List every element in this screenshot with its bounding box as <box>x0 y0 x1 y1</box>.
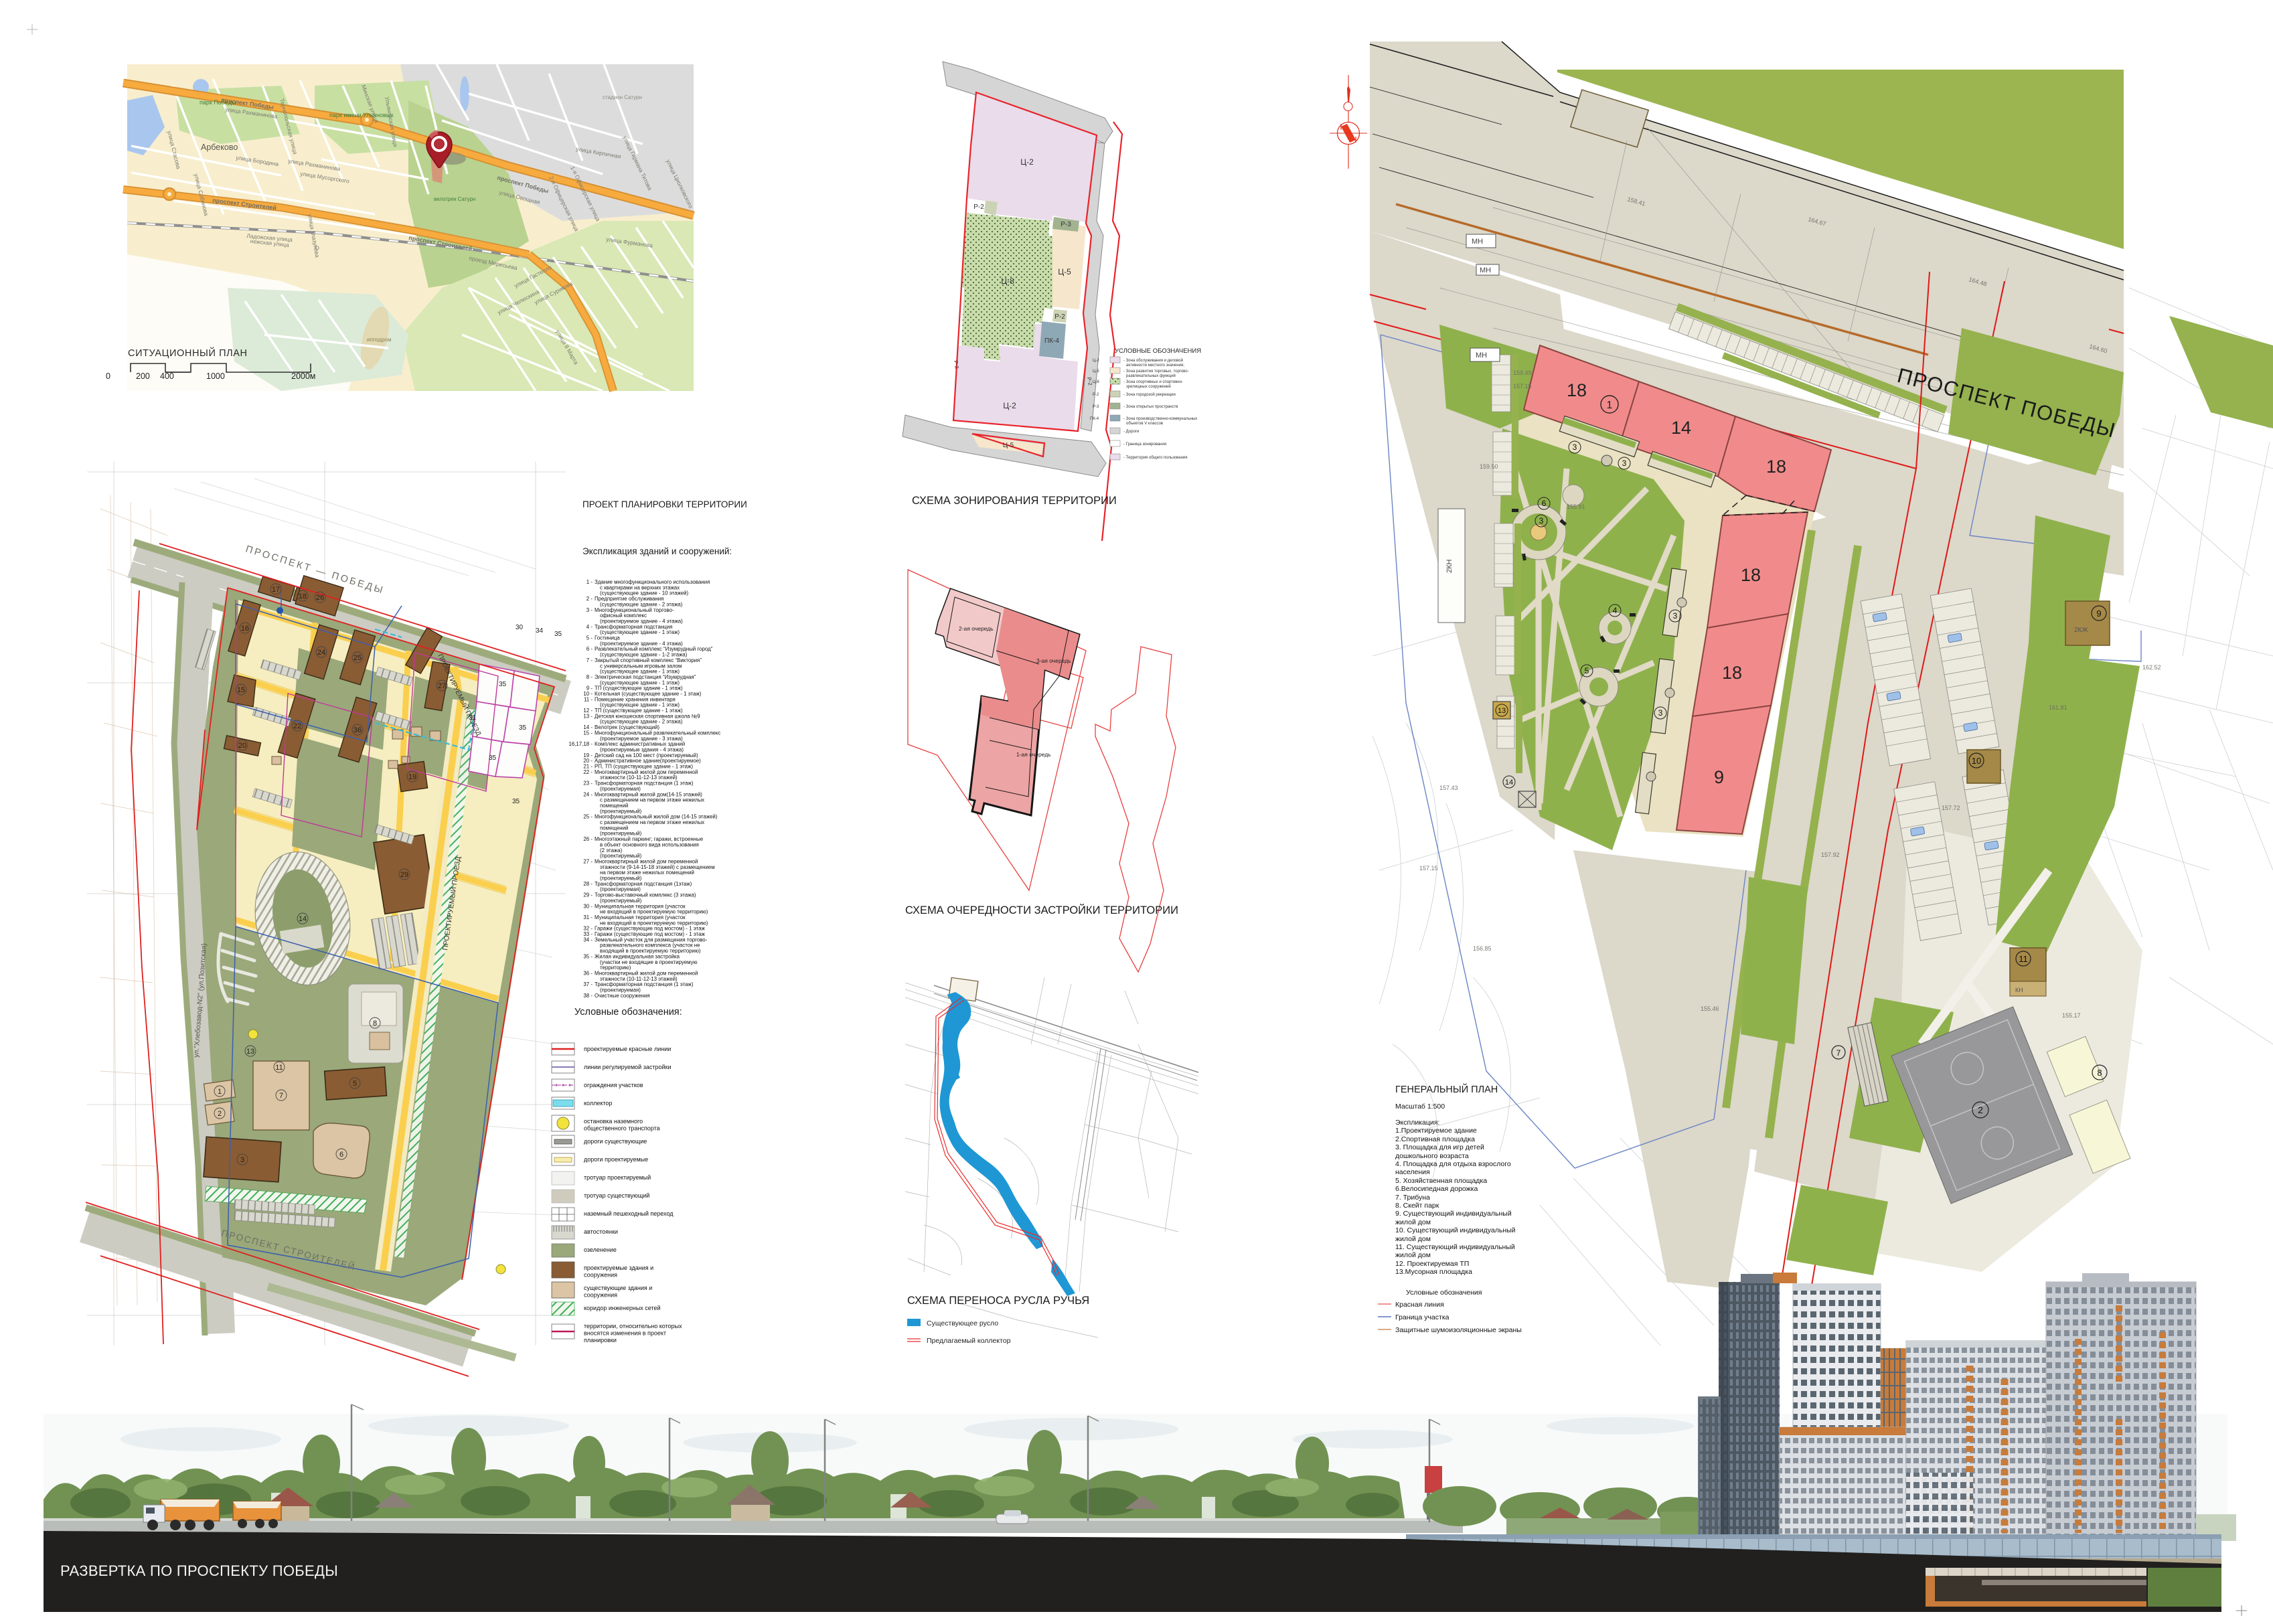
svg-text:8. Скейт парк: 8. Скейт парк <box>1395 1202 1439 1210</box>
svg-text:6 -: 6 - <box>586 646 593 652</box>
svg-text:объектов V классов: объектов V классов <box>1126 422 1163 426</box>
svg-text:ПРОЕКТ ПЛАНИРОВКИ ТЕРРИТОРИИ: ПРОЕКТ ПЛАНИРОВКИ ТЕРРИТОРИИ <box>582 499 747 509</box>
svg-text:Р-2: Р-2 <box>1054 313 1065 321</box>
svg-text:20: 20 <box>238 742 246 750</box>
svg-text:14: 14 <box>1671 418 1691 438</box>
svg-text:5: 5 <box>353 1080 357 1088</box>
svg-text:18: 18 <box>1766 457 1786 477</box>
svg-text:29 -: 29 - <box>583 892 593 898</box>
svg-text:8 -: 8 - <box>586 674 593 680</box>
svg-text:существующие здания и: существующие здания и <box>584 1285 652 1291</box>
svg-text:5: 5 <box>1585 666 1589 675</box>
svg-text:29: 29 <box>400 871 408 879</box>
svg-text:Защитные шумоизоляционные экр: Защитные шумоизоляционные экраны <box>1395 1326 1522 1334</box>
svg-text:157.15: 157.15 <box>1419 865 1438 872</box>
svg-text:4 -: 4 - <box>586 624 593 630</box>
svg-text:- Зона городской рекреации: - Зона городской рекреации <box>1123 392 1176 397</box>
svg-text:157.43: 157.43 <box>1439 785 1458 791</box>
svg-text:18: 18 <box>299 592 307 600</box>
svg-text:13.Мусорная площадка: 13.Мусорная площадка <box>1395 1268 1472 1276</box>
svg-text:Ц-2: Ц-2 <box>1003 401 1016 410</box>
svg-text:7. Трибуна: 7. Трибуна <box>1395 1194 1430 1202</box>
svg-text:16: 16 <box>241 625 249 633</box>
svg-text:Предлагаемый коллектор: Предлагаемый коллектор <box>927 1337 1011 1345</box>
svg-text:35: 35 <box>554 631 562 638</box>
svg-text:3. Площадка для игр детей: 3. Площадка для игр детей <box>1395 1143 1484 1151</box>
svg-text:14: 14 <box>299 915 307 923</box>
svg-text:34 -: 34 - <box>583 937 593 943</box>
svg-text:2-ая очередь: 2-ая очередь <box>959 625 994 632</box>
svg-text:23 -: 23 - <box>583 781 593 787</box>
svg-text:25: 25 <box>354 654 362 662</box>
svg-text:дошкольного возраста: дошкольного возраста <box>1395 1152 1469 1160</box>
svg-text:тротуар проектируемый: тротуар проектируемый <box>584 1174 651 1181</box>
svg-text:22: 22 <box>293 722 301 730</box>
svg-text:парк имени Ульяновых: парк имени Ульяновых <box>329 112 394 118</box>
svg-text:Ц-2: Ц-2 <box>1093 359 1099 363</box>
svg-text:1: 1 <box>218 1088 222 1096</box>
svg-text:9. Существующий индивидуальный: 9. Существующий индивидуальный <box>1395 1210 1512 1218</box>
svg-text:Экспликация зданий и сооружени: Экспликация зданий и сооружений: <box>582 546 732 556</box>
svg-text:жилой дом: жилой дом <box>1395 1235 1431 1243</box>
svg-text:200: 200 <box>136 372 150 381</box>
svg-text:Ц-5: Ц-5 <box>1003 442 1014 449</box>
svg-text:27 -: 27 - <box>583 859 593 865</box>
svg-text:Экспликация:: Экспликация: <box>1395 1119 1439 1127</box>
svg-text:18: 18 <box>1722 663 1742 683</box>
svg-text:24: 24 <box>317 649 325 657</box>
svg-text:155.91: 155.91 <box>1567 503 1585 510</box>
svg-text:7: 7 <box>1836 1048 1841 1058</box>
svg-text:3: 3 <box>1622 459 1627 468</box>
svg-text:3 -: 3 - <box>586 607 593 613</box>
svg-text:25 -: 25 - <box>583 814 593 820</box>
svg-text:населения: населения <box>1395 1168 1430 1176</box>
svg-text:6.Велосипедная дорожка: 6.Велосипедная дорожка <box>1395 1185 1478 1193</box>
svg-text:16,17,18 -: 16,17,18 - <box>568 741 593 747</box>
svg-text:Граница участка: Граница участка <box>1395 1313 1449 1321</box>
svg-text:жилой дом: жилой дом <box>1395 1218 1431 1226</box>
svg-text:36: 36 <box>354 726 362 734</box>
svg-text:активности местного значения;: активности местного значения; <box>1126 363 1184 368</box>
svg-text:2: 2 <box>1978 1105 1983 1115</box>
svg-text:Ц-8: Ц-8 <box>1093 380 1099 384</box>
svg-text:- Зона спортивных и спортивно-: - Зона спортивных и спортивно- <box>1123 380 1183 384</box>
svg-text:тротуар существующий: тротуар существующий <box>584 1192 649 1199</box>
svg-text:34: 34 <box>536 627 544 635</box>
svg-text:6: 6 <box>1542 499 1547 508</box>
svg-text:28 -: 28 - <box>583 881 593 887</box>
svg-text:дороги проектируемые: дороги проектируемые <box>584 1156 648 1163</box>
svg-text:35: 35 <box>489 754 497 762</box>
svg-text:31 -: 31 - <box>583 914 593 920</box>
svg-text:11: 11 <box>2019 954 2028 964</box>
svg-text:2 -: 2 - <box>586 596 593 602</box>
svg-text:2.Спортивная площадка: 2.Спортивная площадка <box>1395 1135 1475 1143</box>
svg-text:Красная линия: Красная линия <box>1395 1301 1444 1309</box>
svg-text:- Зона развития торговых, торг: - Зона развития торговых, торгово- <box>1123 370 1189 374</box>
svg-text:зрелищных сооружений: зрелищных сооружений <box>1126 384 1171 389</box>
svg-text:УСЛОВНЫЕ ОБОЗНАЧЕНИЯ: УСЛОВНЫЕ ОБОЗНАЧЕНИЯ <box>1115 347 1201 355</box>
svg-text:13 -: 13 - <box>583 713 593 719</box>
svg-text:13: 13 <box>246 1048 254 1056</box>
svg-text:156.85: 156.85 <box>1473 945 1492 952</box>
svg-text:36 -: 36 - <box>583 971 593 977</box>
svg-text:13: 13 <box>1498 707 1506 715</box>
svg-text:30 -: 30 - <box>583 903 593 909</box>
svg-text:18: 18 <box>1567 380 1587 400</box>
svg-text:Очистные сооружения: Очистные сооружения <box>595 993 650 999</box>
svg-text:155.17: 155.17 <box>2062 1012 2081 1019</box>
svg-text:КН: КН <box>2015 987 2023 993</box>
svg-text:2000м: 2000м <box>291 372 315 381</box>
svg-text:СХЕМА ЗОНИРОВАНИЯ ТЕРРИТОРИИ: СХЕМА ЗОНИРОВАНИЯ ТЕРРИТОРИИ <box>912 495 1117 507</box>
svg-text:3: 3 <box>1658 708 1663 718</box>
svg-text:3: 3 <box>1539 516 1544 525</box>
svg-text:3: 3 <box>1673 611 1678 621</box>
svg-text:МН: МН <box>1480 266 1491 274</box>
svg-text:ипподром: ипподром <box>367 337 391 343</box>
svg-text:3-ая очередь: 3-ая очередь <box>1036 657 1071 664</box>
svg-text:11. Существующий индивидуальны: 11. Существующий индивидуальный <box>1395 1243 1515 1251</box>
svg-text:35 -: 35 - <box>583 953 593 959</box>
svg-text:Ц-5: Ц-5 <box>1093 370 1099 374</box>
svg-text:6: 6 <box>339 1151 343 1159</box>
svg-text:19: 19 <box>408 773 416 781</box>
svg-text:11: 11 <box>275 1064 283 1072</box>
svg-text:22 -: 22 - <box>583 769 593 775</box>
svg-text:Ц-2: Ц-2 <box>1020 157 1034 167</box>
svg-text:11 -: 11 - <box>584 696 593 702</box>
svg-text:ограждения участков: ограждения участков <box>584 1082 643 1088</box>
svg-text:10. Существующий индивидуальны: 10. Существующий индивидуальный <box>1395 1226 1516 1234</box>
svg-text:Ц-5: Ц-5 <box>1058 267 1071 276</box>
svg-text:15 -: 15 - <box>583 730 593 736</box>
svg-text:коллектор: коллектор <box>584 1100 612 1107</box>
svg-text:37 -: 37 - <box>583 981 593 987</box>
svg-text:5. Хозяйственная площадка: 5. Хозяйственная площадка <box>1395 1177 1487 1185</box>
svg-text:15: 15 <box>237 686 245 694</box>
svg-text:ГЕНЕРАЛЬНЫЙ ПЛАН: ГЕНЕРАЛЬНЫЙ ПЛАН <box>1395 1083 1498 1095</box>
svg-text:1: 1 <box>1607 400 1613 411</box>
svg-text:2: 2 <box>218 1110 222 1118</box>
svg-text:озеленение: озеленение <box>584 1246 617 1253</box>
svg-text:8: 8 <box>373 1020 377 1028</box>
svg-text:5 -: 5 - <box>586 635 593 641</box>
svg-text:30: 30 <box>516 624 524 631</box>
svg-text:СХЕМА ОЧЕРЕДНОСТИ ЗАСТРОЙКИ ТЕ: СХЕМА ОЧЕРЕДНОСТИ ЗАСТРОЙКИ ТЕРРИТОРИИ <box>905 904 1178 916</box>
svg-text:157.72: 157.72 <box>1942 805 1960 811</box>
svg-text:Р-3: Р-3 <box>1061 221 1071 228</box>
svg-text:400: 400 <box>160 372 174 381</box>
svg-text:0: 0 <box>106 372 110 381</box>
svg-text:26 -: 26 - <box>583 836 593 842</box>
svg-text:162.52: 162.52 <box>2142 664 2161 671</box>
svg-text:17: 17 <box>272 586 280 594</box>
svg-text:проектируемые здания и: проектируемые здания и <box>584 1265 653 1271</box>
svg-text:3: 3 <box>1573 442 1577 452</box>
svg-text:Ц-8: Ц-8 <box>1001 276 1014 286</box>
svg-text:территории, относительно котор: территории, относительно которых <box>584 1323 682 1329</box>
svg-text:157.92: 157.92 <box>1821 851 1840 858</box>
svg-text:27: 27 <box>438 682 446 690</box>
svg-text:1.Проектируемое здание: 1.Проектируемое здание <box>1395 1127 1477 1135</box>
svg-text:4: 4 <box>1613 606 1618 615</box>
svg-text:4. Площадка для отдыха взросло: 4. Площадка для отдыха взрослого <box>1395 1160 1511 1168</box>
svg-text:2КН: 2КН <box>1445 559 1454 573</box>
svg-text:СХЕМА ПЕРЕНОСА РУСЛА РУЧЬЯ: СХЕМА ПЕРЕНОСА РУСЛА РУЧЬЯ <box>907 1295 1089 1307</box>
svg-text:159.50: 159.50 <box>1480 463 1498 470</box>
svg-text:12. Проектируемая ТП: 12. Проектируемая ТП <box>1395 1260 1469 1268</box>
svg-text:Р-2: Р-2 <box>1093 393 1099 397</box>
svg-text:остановка наземного: остановка наземного <box>584 1118 643 1125</box>
svg-text:парк Победы: парк Победы <box>200 99 236 106</box>
svg-text:РАЗВЕРТКА ПО ПРОСПЕКТУ ПОБЕДЫ: РАЗВЕРТКА ПО ПРОСПЕКТУ ПОБЕДЫ <box>60 1562 338 1579</box>
svg-text:Арбеково: Арбеково <box>201 143 238 152</box>
svg-text:дороги существующие: дороги существующие <box>584 1138 647 1145</box>
svg-text:157.15: 157.15 <box>1513 383 1532 390</box>
svg-text:стадион Сатурн: стадион Сатурн <box>603 94 642 100</box>
svg-text:9: 9 <box>1714 767 1724 787</box>
svg-text:- Территория общего пользовани: - Территория общего пользования <box>1123 456 1188 460</box>
svg-text:2КЖ: 2КЖ <box>2074 627 2088 634</box>
svg-text:38 -: 38 - <box>583 993 593 999</box>
svg-text:сооружения: сооружения <box>584 1272 617 1279</box>
svg-text:ПК-4: ПК-4 <box>1090 417 1099 421</box>
svg-text:Условные обозначения: Условные обозначения <box>1406 1289 1482 1297</box>
svg-text:35: 35 <box>512 798 520 805</box>
svg-text:ПК-4: ПК-4 <box>1044 337 1059 345</box>
svg-text:18: 18 <box>1741 565 1761 585</box>
svg-text:9: 9 <box>2096 608 2101 619</box>
svg-text:коридор инженерных сетей: коридор инженерных сетей <box>584 1305 661 1311</box>
svg-text:1000: 1000 <box>206 372 225 381</box>
svg-text:автостоянки: автостоянки <box>584 1228 618 1235</box>
svg-text:7: 7 <box>279 1092 283 1100</box>
svg-text:МН: МН <box>1476 351 1487 359</box>
svg-text:Условные обозначения:: Условные обозначения: <box>574 1007 682 1018</box>
svg-text:велотрек Сатурн: велотрек Сатурн <box>434 196 475 202</box>
svg-text:24 -: 24 - <box>583 791 593 797</box>
svg-text:- Граница зонирования: - Граница зонирования <box>1123 442 1166 446</box>
svg-text:35: 35 <box>519 724 527 732</box>
svg-text:35: 35 <box>499 681 507 688</box>
svg-text:Р-2: Р-2 <box>973 204 984 211</box>
svg-text:- Зона открытых пространств: - Зона открытых пространств <box>1123 405 1178 409</box>
svg-text:161.81: 161.81 <box>2049 704 2067 711</box>
svg-text:наземный пешеходный переход: наземный пешеходный переход <box>584 1210 674 1217</box>
svg-text:проектируемые красные линии: проектируемые красные линии <box>584 1046 671 1052</box>
svg-text:Существующее русло: Существующее русло <box>927 1319 998 1327</box>
svg-text:СИТУАЦИОННЫЙ ПЛАН: СИТУАЦИОННЫЙ ПЛАН <box>128 347 248 359</box>
svg-text:сооружения: сооружения <box>584 1292 617 1299</box>
svg-text:155.46: 155.46 <box>1701 1005 1719 1012</box>
svg-text:общественного транспорта: общественного транспорта <box>584 1125 660 1132</box>
svg-text:развлекательных функций: развлекательных функций <box>1126 374 1176 378</box>
svg-text:жилой дом: жилой дом <box>1395 1251 1431 1259</box>
svg-text:- Зона производственно-коммуна: - Зона производственно-коммунальных <box>1123 417 1197 421</box>
svg-text:8: 8 <box>2097 1068 2102 1078</box>
svg-text:планировки: планировки <box>584 1337 617 1344</box>
svg-text:3: 3 <box>240 1156 244 1164</box>
svg-text:1-ая очередь: 1-ая очередь <box>1016 751 1051 758</box>
svg-text:- Дороги: - Дороги <box>1123 430 1139 434</box>
svg-text:159.49: 159.49 <box>1513 370 1532 376</box>
svg-text:7 -: 7 - <box>586 657 593 663</box>
svg-text:14: 14 <box>1505 779 1513 787</box>
svg-text:10: 10 <box>1972 756 1981 766</box>
svg-text:Масштаб 1:500: Масштаб 1:500 <box>1395 1103 1445 1111</box>
svg-text:линии регулируемой застройки: линии регулируемой застройки <box>584 1064 671 1070</box>
svg-text:МН: МН <box>1472 238 1483 246</box>
svg-text:1 -: 1 - <box>586 579 593 585</box>
svg-text:вносятся изменения в проект: вносятся изменения в проект <box>584 1330 666 1337</box>
svg-text:26: 26 <box>316 594 324 602</box>
svg-text:- Зона обслуживания и деловой: - Зона обслуживания и деловой <box>1123 358 1183 363</box>
svg-text:Р-3: Р-3 <box>1093 405 1099 409</box>
